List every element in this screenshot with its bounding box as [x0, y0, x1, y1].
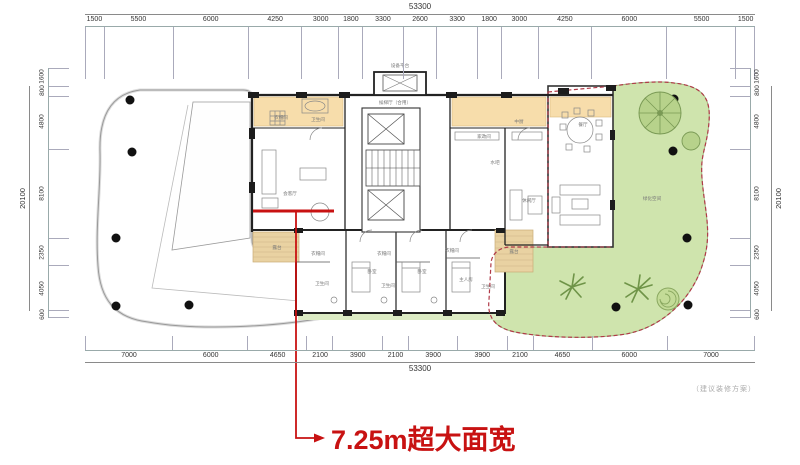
dim-left-ticks	[48, 68, 69, 318]
dim-left-numbers: 1600 800 4800 8100 2350 4050 600	[36, 68, 48, 318]
room-label-master: 主人房	[459, 276, 473, 283]
room-label-closet-3: 衣帽间	[445, 247, 459, 254]
room-label-bedroom-1: 卧室	[367, 268, 377, 275]
room-label-bath-3: 卫生间	[481, 283, 495, 290]
room-label-green-space: 绿化空间	[643, 195, 662, 202]
right-wing	[505, 128, 548, 245]
width-leader-arrowhead	[314, 434, 325, 443]
dim-right-numbers: 1600 800 4800 8100 2350 4050 600	[751, 68, 763, 318]
dim-chain-right: 1600 800 4800 8100 2350 4050 600	[730, 68, 764, 318]
room-label-bathroom-top: 卫生间	[311, 116, 325, 123]
room-label-dining: 餐厅	[578, 121, 588, 128]
bedroom-wing	[296, 230, 505, 313]
room-label-housekeeping: 家政间	[477, 133, 491, 140]
room-label-terrace-left: 露台	[272, 244, 282, 251]
width-highlight-text: 7.25m超大面宽	[331, 424, 516, 455]
tree-small	[682, 132, 700, 150]
orange-floor-dining	[550, 97, 611, 117]
dim-top-numbers: 1500 5500 6000 4250 3000 1800 3300 2600 …	[85, 15, 755, 26]
room-label-closet-2: 衣帽间	[377, 250, 391, 257]
floor-plan-canvas: 设备平台 候梯厅（合用） 衣帽间 卫生间 会客厅 露台 露台 家政间 中厨 水吧…	[0, 0, 800, 465]
room-label-living-room: 会客厅	[283, 190, 297, 197]
dim-left-total: 20100	[16, 86, 30, 311]
stairs	[366, 150, 420, 186]
room-label-closet-top: 衣帽间	[274, 114, 288, 121]
room-label-kitchen: 中厨	[514, 118, 524, 125]
room-label-bath-1: 卫生间	[315, 280, 329, 287]
room-label-terrace-right: 露台	[509, 248, 519, 255]
room-label-bath-2: 卫生间	[381, 282, 395, 289]
dim-top-total: 53300	[85, 2, 755, 15]
dim-chain-top: 53300 1500 5500 6000 4250 3000 1800 3300…	[85, 2, 755, 79]
dim-top-ticks	[85, 26, 755, 79]
room-label-bedroom-2: 卧室	[417, 268, 427, 275]
plan-note: （建议装修方案）	[692, 384, 756, 394]
room-label-elevator-lobby: 候梯厅（合用）	[379, 99, 411, 106]
room-label-closet-1: 衣帽间	[311, 250, 325, 257]
room-label-lounge: 休闲厅	[522, 197, 536, 204]
orange-floor-right	[452, 97, 546, 126]
width-leader-elbow	[296, 425, 314, 438]
dim-chain-bottom: 7000 6000 4650 2100 3900 2100 3900 3900 …	[85, 336, 755, 377]
dim-chain-left: 1600 800 4800 8100 2350 4050 600	[36, 68, 70, 318]
dim-bottom-total: 53300	[85, 362, 755, 377]
pond	[657, 288, 679, 310]
tree-large	[639, 92, 681, 134]
dim-bottom-ticks	[85, 336, 755, 351]
dim-bottom-numbers: 7000 6000 4650 2100 3900 2100 3900 3900 …	[85, 351, 755, 362]
dim-right-total: 20100	[771, 86, 785, 311]
room-label-water-bar: 水吧	[490, 159, 500, 165]
dim-right-ticks	[730, 68, 751, 318]
orange-floor-left	[254, 97, 343, 126]
